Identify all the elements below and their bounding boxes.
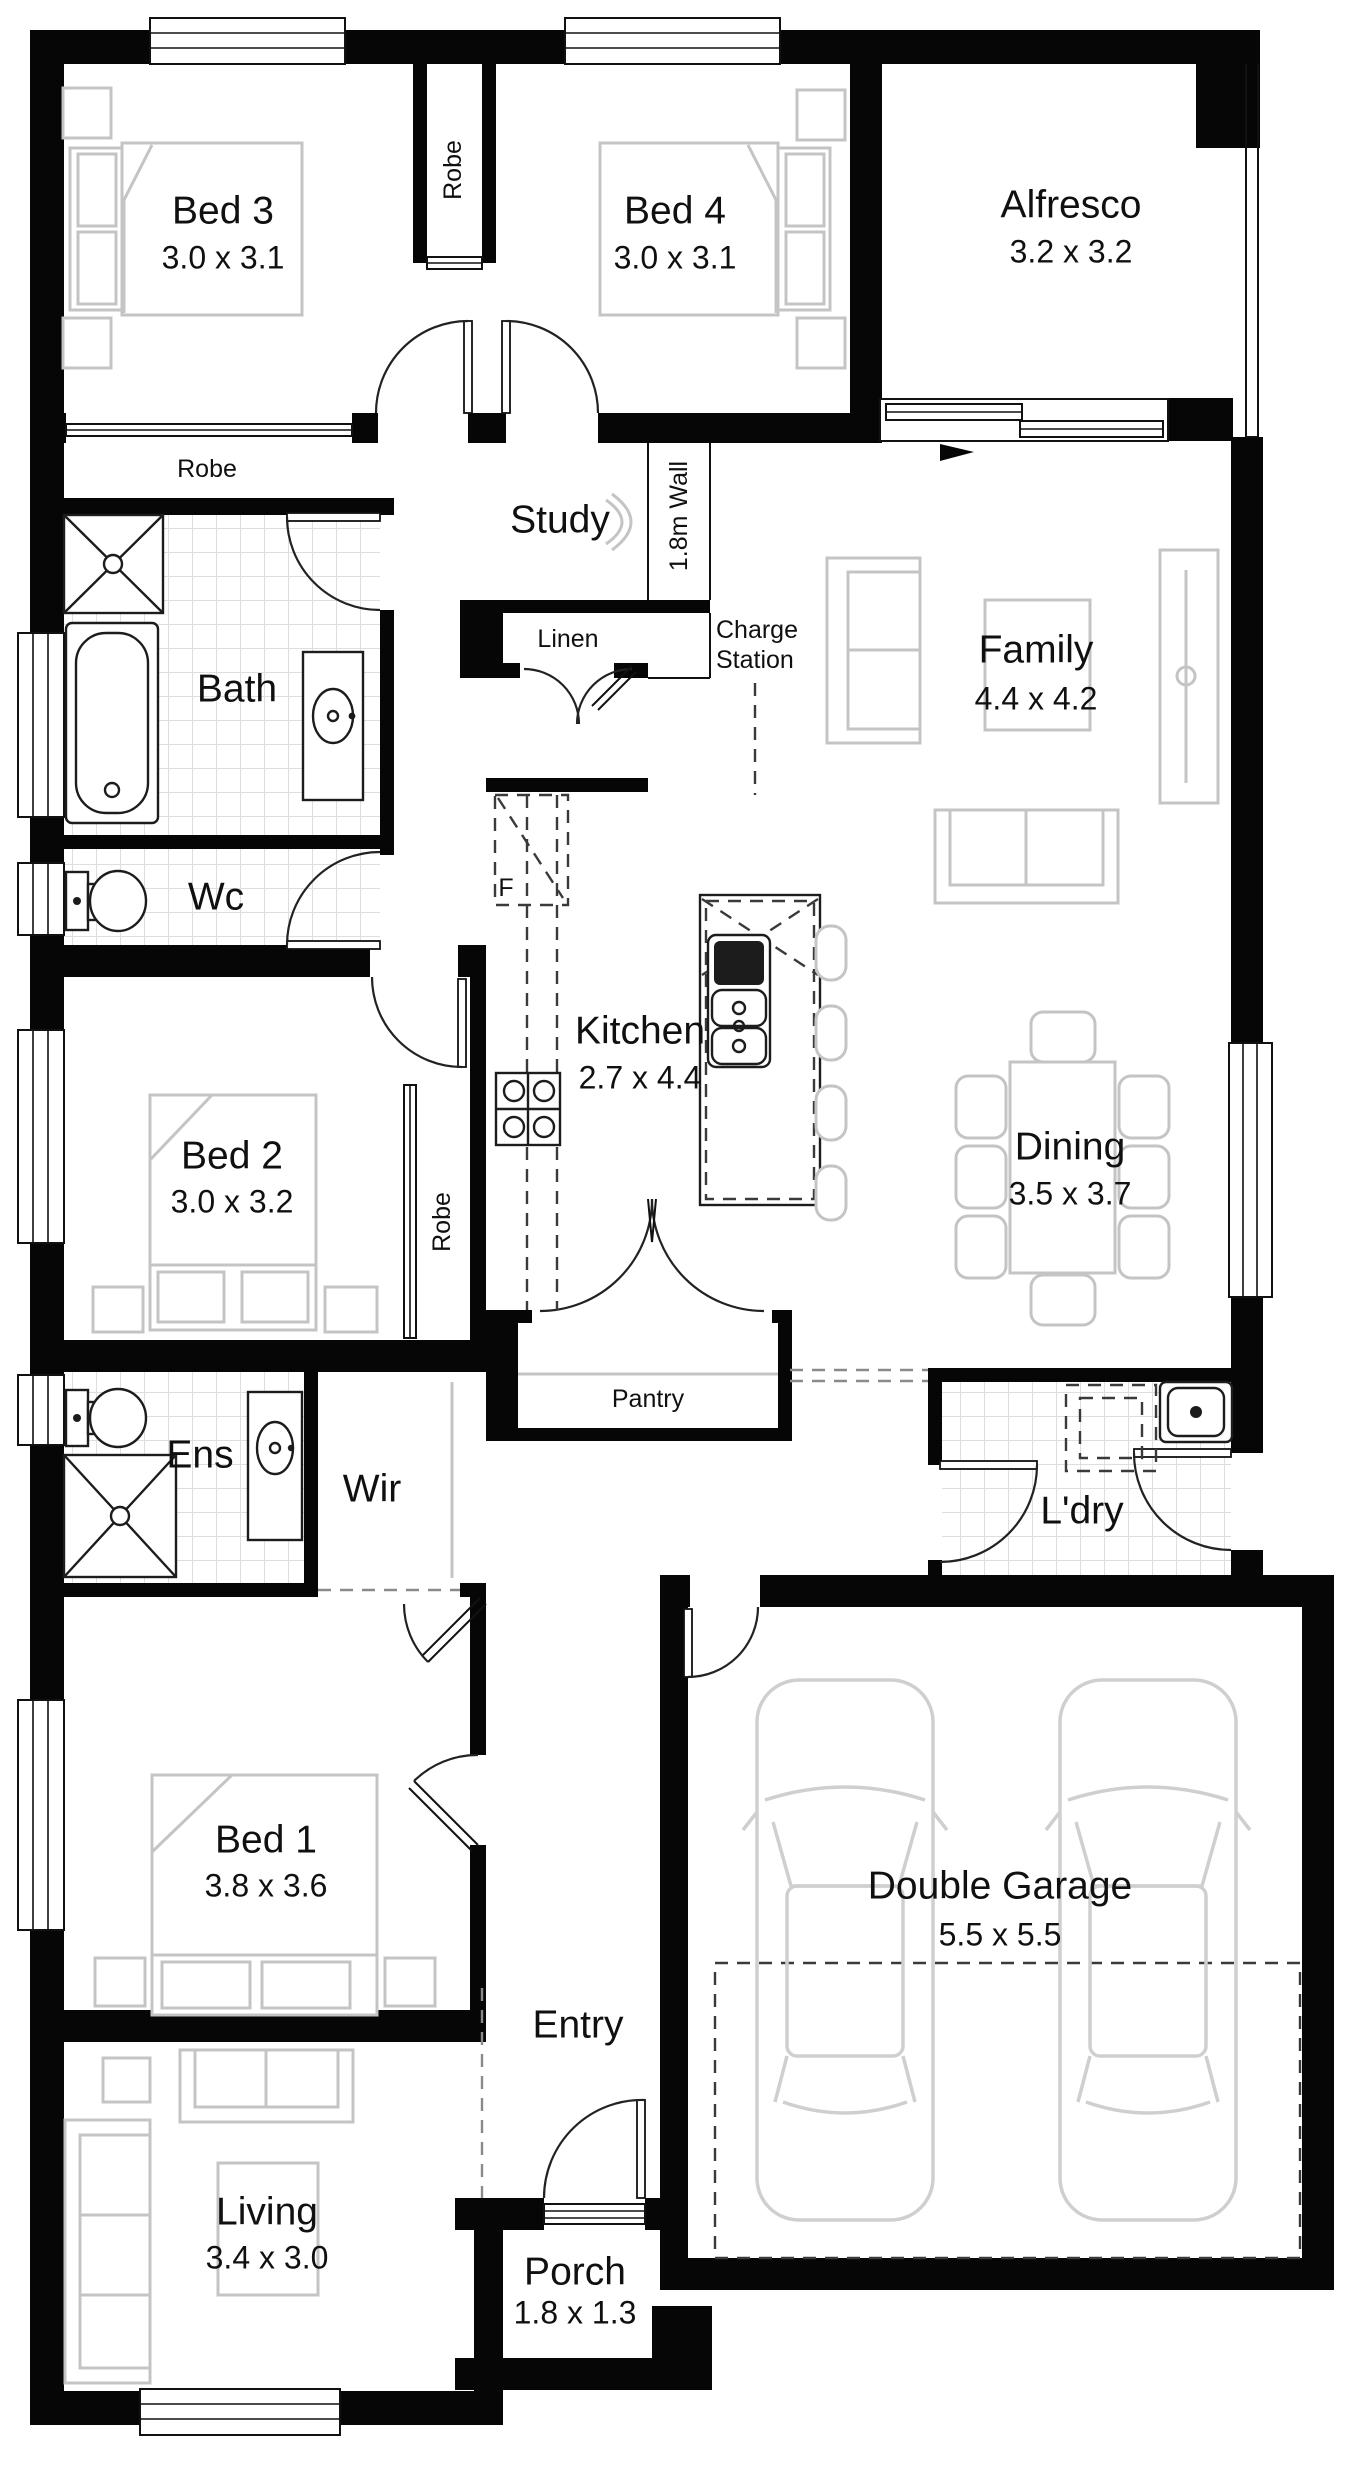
label-layer: Bed 3 3.0 x 3.1 Bed 4 3.0 x 3.1 Alfresco… — [0, 0, 1355, 2482]
fridge-label: F — [498, 875, 513, 901]
bed3-label: Bed 3 — [172, 192, 274, 233]
ens-label: Ens — [166, 1436, 233, 1477]
bed2-dims: 3.0 x 3.2 — [171, 1185, 294, 1218]
bed2-label: Bed 2 — [181, 1137, 283, 1178]
wir-label: Wir — [343, 1470, 401, 1511]
floor-plan-page: Bed 3 3.0 x 3.1 Bed 4 3.0 x 3.1 Alfresco… — [0, 0, 1355, 2482]
robe-bed2-label: Robe — [429, 1192, 455, 1252]
bed1-label: Bed 1 — [215, 1821, 317, 1862]
bath-label: Bath — [197, 670, 277, 711]
charge-station-label: Charge Station — [716, 615, 798, 675]
laundry-label: L'dry — [1040, 1492, 1123, 1533]
bed1-dims: 3.8 x 3.6 — [205, 1869, 328, 1902]
bed3-dims: 3.0 x 3.1 — [162, 241, 285, 274]
family-dims: 4.4 x 4.2 — [975, 682, 1098, 715]
dining-label: Dining — [1015, 1128, 1126, 1169]
kitchen-label: Kitchen — [575, 1012, 705, 1053]
kitchen-dims: 2.7 x 4.4 — [579, 1061, 702, 1094]
alfresco-dims: 3.2 x 3.2 — [1010, 235, 1133, 268]
half-wall-label: 1.8m Wall — [666, 461, 692, 571]
wc-label: Wc — [188, 878, 244, 919]
garage-label: Double Garage — [868, 1867, 1133, 1908]
garage-dims: 5.5 x 5.5 — [939, 1918, 1062, 1951]
study-label: Study — [510, 501, 610, 542]
porch-label: Porch — [524, 2253, 626, 2294]
family-label: Family — [979, 631, 1094, 672]
living-dims: 3.4 x 3.0 — [206, 2241, 329, 2274]
dining-dims: 3.5 x 3.7 — [1009, 1177, 1132, 1210]
linen-label: Linen — [537, 626, 598, 652]
robe-bed3-label: Robe — [177, 456, 237, 482]
porch-dims: 1.8 x 1.3 — [514, 2296, 637, 2329]
entry-label: Entry — [532, 2006, 623, 2047]
robe-corridor-label: Robe — [440, 140, 466, 200]
alfresco-label: Alfresco — [1001, 186, 1142, 227]
bed4-dims: 3.0 x 3.1 — [614, 241, 737, 274]
living-label: Living — [216, 2193, 318, 2234]
pantry-label: Pantry — [612, 1386, 684, 1412]
bed4-label: Bed 4 — [624, 192, 726, 233]
